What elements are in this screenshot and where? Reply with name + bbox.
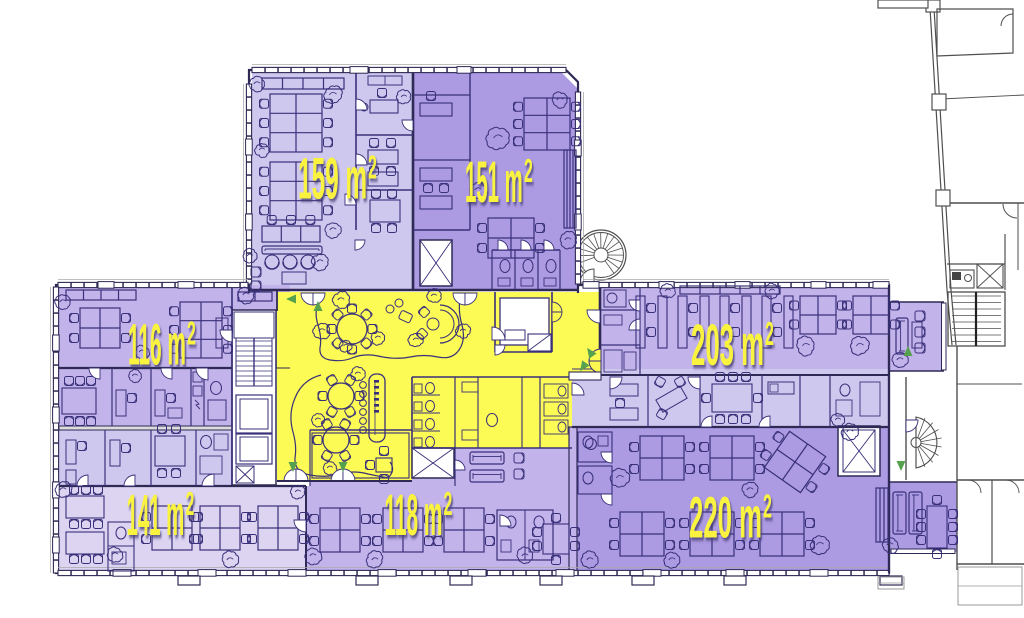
svg-text:220 m: 220 m	[689, 485, 762, 550]
svg-text:2: 2	[765, 315, 774, 353]
svg-text:159 m: 159 m	[298, 146, 367, 211]
svg-text:116 m: 116 m	[128, 312, 186, 377]
svg-text:2: 2	[187, 314, 196, 352]
svg-text:2: 2	[368, 148, 377, 186]
svg-text:2: 2	[443, 485, 452, 523]
svg-text:203 m: 203 m	[691, 313, 764, 378]
svg-text:2: 2	[185, 485, 194, 523]
svg-text:151 m: 151 m	[465, 150, 523, 215]
svg-text:118 m: 118 m	[384, 483, 442, 548]
svg-text:141 m: 141 m	[126, 483, 184, 548]
svg-text:2: 2	[524, 152, 533, 190]
svg-text:2: 2	[763, 487, 772, 525]
